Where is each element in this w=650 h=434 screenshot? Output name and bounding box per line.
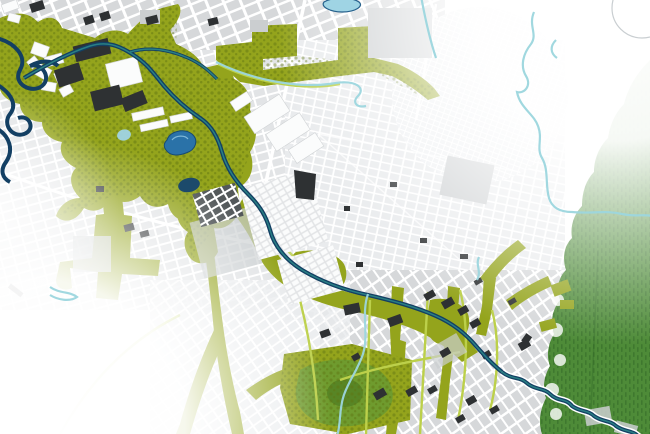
masterplan-map	[0, 0, 650, 434]
fade-overlay	[0, 0, 650, 434]
map-canvas[interactable]	[0, 0, 650, 434]
fade-left	[0, 0, 650, 434]
